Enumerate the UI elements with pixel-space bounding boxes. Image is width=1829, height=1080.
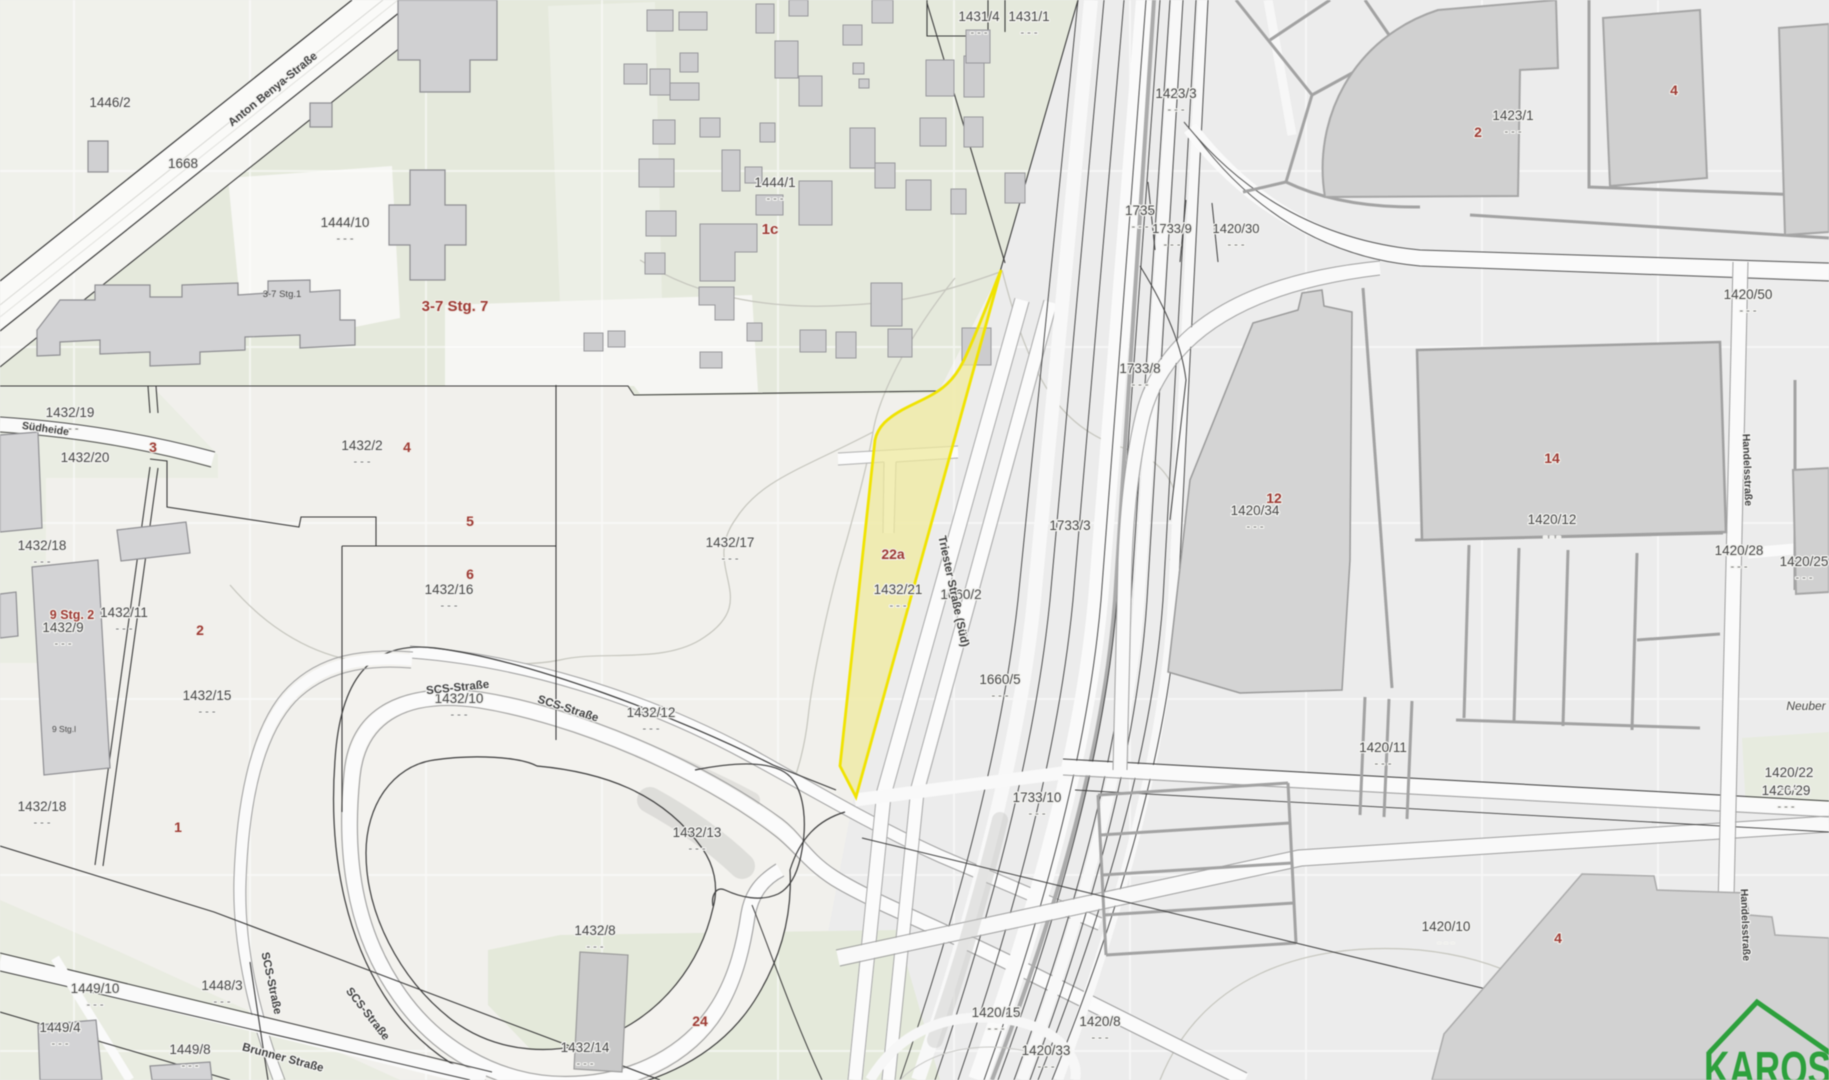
- svg-text:1420/11: 1420/11: [1359, 740, 1407, 755]
- svg-text:6: 6: [466, 566, 474, 582]
- svg-text:- - -: - - -: [1020, 27, 1037, 39]
- svg-text:- - -: - - -: [991, 690, 1008, 702]
- svg-text:- - -: - - -: [1543, 531, 1560, 543]
- svg-text:1432/9: 1432/9: [42, 620, 83, 635]
- svg-text:- - -: - - -: [181, 1060, 198, 1072]
- svg-text:- - -: - - -: [450, 709, 467, 721]
- svg-text:- - -: - - -: [1739, 305, 1756, 317]
- svg-text:1423/1: 1423/1: [1492, 108, 1533, 123]
- svg-text:1733/9: 1733/9: [1152, 221, 1192, 236]
- svg-text:Neuber: Neuber: [1786, 699, 1826, 713]
- svg-text:- - -: - - -: [1037, 1061, 1054, 1073]
- svg-text:- - -: - - -: [642, 723, 659, 735]
- svg-text:- - -: - - -: [1227, 239, 1244, 251]
- svg-text:9 Stg. 2: 9 Stg. 2: [50, 608, 95, 622]
- svg-text:1733/8: 1733/8: [1119, 361, 1160, 376]
- svg-text:1432/14: 1432/14: [561, 1040, 610, 1055]
- svg-text:1420/25: 1420/25: [1780, 554, 1829, 569]
- svg-text:- - -: - - -: [33, 556, 50, 568]
- svg-text:- - -: - - -: [1795, 572, 1812, 584]
- svg-text:- - -: - - -: [586, 941, 603, 953]
- svg-text:- - -: - - -: [198, 706, 215, 718]
- svg-text:1432/15: 1432/15: [183, 688, 232, 703]
- svg-text:3: 3: [149, 439, 157, 455]
- svg-text:1432/17: 1432/17: [706, 535, 755, 550]
- svg-text:Handelsstraße: Handelsstraße: [1738, 889, 1753, 962]
- svg-text:- - -: - - -: [1504, 126, 1521, 138]
- svg-text:- - -: - - -: [766, 193, 783, 205]
- svg-text:22a: 22a: [881, 546, 905, 562]
- svg-text:1431/4: 1431/4: [958, 9, 1000, 24]
- svg-text:9 Stg.l: 9 Stg.l: [52, 724, 76, 734]
- svg-text:3-7 Stg.1: 3-7 Stg.1: [263, 289, 302, 300]
- svg-text:- - -: - - -: [86, 999, 103, 1011]
- svg-text:- - -: - - -: [33, 817, 50, 829]
- svg-text:1448/3: 1448/3: [201, 978, 242, 993]
- svg-text:- - -: - - -: [115, 623, 132, 635]
- svg-text:KAROS: KAROS: [1704, 1043, 1829, 1080]
- svg-text:1735: 1735: [1125, 203, 1155, 218]
- svg-text:- - -: - - -: [1091, 1032, 1108, 1044]
- svg-text:1432/2: 1432/2: [341, 438, 382, 453]
- svg-text:- - -: - - -: [1131, 221, 1148, 233]
- svg-text:24: 24: [692, 1013, 708, 1029]
- svg-text:1449/10: 1449/10: [71, 981, 120, 996]
- svg-text:- - -: - - -: [721, 553, 738, 565]
- svg-text:1444/10: 1444/10: [321, 215, 370, 230]
- svg-text:1432/19: 1432/19: [46, 405, 95, 420]
- svg-text:1420/22: 1420/22: [1765, 765, 1814, 780]
- svg-text:- - -: - - -: [213, 996, 230, 1008]
- svg-text:- - -: - - -: [1730, 561, 1747, 573]
- svg-text:1420/30: 1420/30: [1213, 221, 1260, 236]
- svg-text:1733/3: 1733/3: [1049, 518, 1090, 533]
- svg-text:1432/11: 1432/11: [100, 605, 148, 620]
- svg-text:- - -: - - -: [1131, 379, 1148, 391]
- svg-text:- - -: - - -: [54, 638, 71, 650]
- svg-text:- - -: - - -: [970, 27, 987, 39]
- svg-text:1432/8: 1432/8: [574, 923, 615, 938]
- svg-text:- - -: - - -: [889, 600, 906, 612]
- svg-text:1420/8: 1420/8: [1079, 1014, 1120, 1029]
- svg-text:1423/3: 1423/3: [1155, 86, 1196, 101]
- svg-text:1432/21: 1432/21: [874, 582, 923, 597]
- svg-text:- - -: - - -: [1437, 937, 1454, 949]
- svg-text:- - -: - - -: [688, 843, 705, 855]
- svg-text:14: 14: [1544, 450, 1560, 466]
- svg-text:- - -: - - -: [336, 233, 353, 245]
- svg-text:1420/12: 1420/12: [1528, 512, 1577, 527]
- svg-text:3-7 Stg. 7: 3-7 Stg. 7: [422, 298, 489, 315]
- svg-text:- - -: - - -: [1163, 239, 1180, 251]
- svg-text:- - -: - - -: [353, 456, 370, 468]
- svg-text:1444/1: 1444/1: [754, 175, 795, 190]
- svg-text:1420/10: 1420/10: [1422, 919, 1471, 934]
- svg-text:1449/8: 1449/8: [169, 1042, 210, 1057]
- svg-text:4: 4: [403, 439, 411, 455]
- svg-text:1432/18: 1432/18: [18, 538, 67, 553]
- svg-text:1733/10: 1733/10: [1013, 790, 1062, 805]
- svg-text:- - -: - - -: [1780, 783, 1797, 795]
- svg-text:2: 2: [1474, 124, 1482, 140]
- svg-text:Handelsstraße: Handelsstraße: [1740, 434, 1755, 507]
- svg-text:1432/13: 1432/13: [673, 825, 722, 840]
- svg-text:1449/4: 1449/4: [39, 1020, 81, 1035]
- svg-text:1420/28: 1420/28: [1715, 543, 1764, 558]
- svg-text:1668: 1668: [168, 156, 198, 171]
- svg-text:1420/15: 1420/15: [972, 1005, 1021, 1020]
- svg-text:1432/18: 1432/18: [18, 799, 67, 814]
- svg-text:1660/5: 1660/5: [979, 672, 1020, 687]
- svg-text:12: 12: [1266, 490, 1282, 506]
- svg-text:1432/20: 1432/20: [61, 450, 110, 465]
- svg-text:- - -: - - -: [440, 600, 457, 612]
- svg-text:- - -: - - -: [51, 1038, 68, 1050]
- svg-text:1446/2: 1446/2: [89, 95, 130, 110]
- svg-text:- - -: - - -: [987, 1023, 1004, 1035]
- svg-text:5: 5: [466, 513, 474, 529]
- svg-text:- - -: - - -: [1777, 801, 1794, 813]
- svg-text:1: 1: [174, 819, 182, 835]
- svg-text:- - -: - - -: [1374, 758, 1391, 770]
- svg-text:- - -: - - -: [576, 1058, 593, 1070]
- svg-text:1431/1: 1431/1: [1008, 9, 1049, 24]
- svg-text:4: 4: [1670, 82, 1678, 98]
- svg-text:1420/33: 1420/33: [1022, 1043, 1071, 1058]
- svg-text:1420/50: 1420/50: [1724, 287, 1773, 302]
- svg-text:1432/12: 1432/12: [627, 705, 676, 720]
- svg-text:4: 4: [1554, 930, 1562, 946]
- svg-text:- - -: - - -: [1246, 521, 1263, 533]
- svg-text:- - -: - - -: [1028, 808, 1045, 820]
- svg-text:2: 2: [196, 622, 204, 638]
- svg-text:- - -: - - -: [1167, 104, 1184, 116]
- svg-text:1c: 1c: [762, 221, 779, 238]
- svg-text:1432/16: 1432/16: [425, 582, 474, 597]
